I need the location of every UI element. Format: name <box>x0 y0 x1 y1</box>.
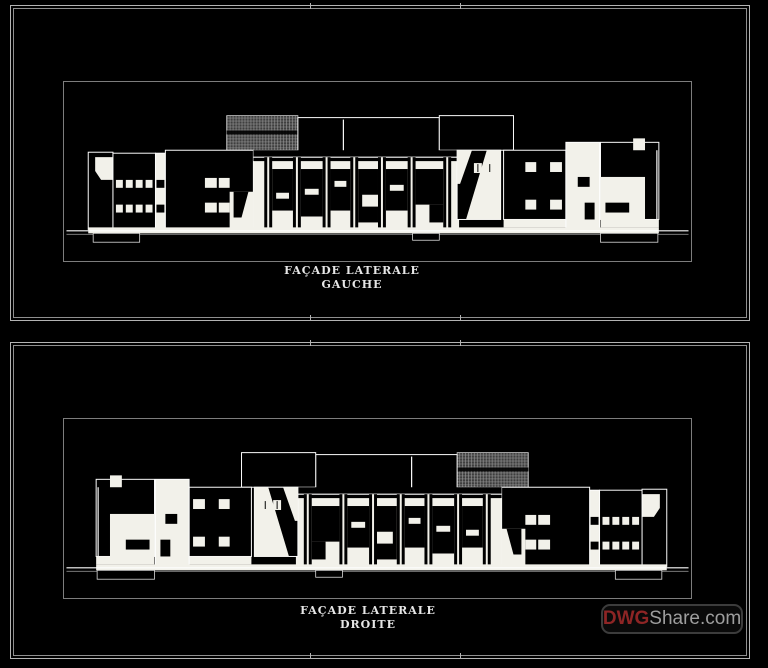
facade-label-droite: FAÇADE LATERALE DROITE <box>218 604 518 631</box>
frame-tick <box>460 3 461 9</box>
watermark-dwg-text: DWG <box>603 608 649 630</box>
frame-tick <box>460 653 461 659</box>
frame-tick <box>460 315 461 321</box>
facade-label-gauche: FAÇADE LATERALE GAUCHE <box>202 264 502 291</box>
dwgshare-watermark: DWGShare.com <box>601 604 743 634</box>
frame-tick <box>310 315 311 321</box>
facade-drawing-droite <box>64 419 691 598</box>
facade-subtitle: GAUCHE <box>202 278 502 291</box>
facade-title: FAÇADE LATERALE <box>202 264 502 277</box>
viewport-gauche <box>63 81 692 262</box>
viewport-droite <box>63 418 692 599</box>
facade-drawing-gauche <box>64 82 691 261</box>
facade-title: FAÇADE LATERALE <box>218 604 518 617</box>
facade-subtitle: DROITE <box>218 618 518 631</box>
frame-tick <box>310 340 311 346</box>
cad-canvas: FAÇADE LATERALE GAUCHE FAÇADE LATERALE D… <box>0 0 768 668</box>
frame-tick <box>310 3 311 9</box>
frame-tick <box>460 340 461 346</box>
watermark-share-text: Share.com <box>649 608 741 630</box>
frame-tick <box>310 653 311 659</box>
